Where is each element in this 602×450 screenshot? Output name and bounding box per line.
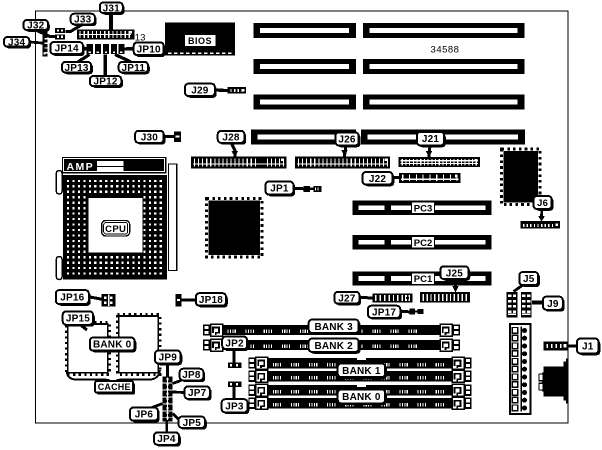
svg-text:CPU: CPU — [105, 224, 126, 235]
svg-text:J5: J5 — [523, 274, 535, 285]
svg-text:JP13: JP13 — [65, 63, 89, 74]
svg-text:J21: J21 — [422, 134, 440, 145]
svg-text:JP9: JP9 — [159, 353, 178, 364]
svg-text:JP5: JP5 — [183, 418, 202, 429]
svg-text:J28: J28 — [222, 133, 240, 144]
svg-text:BANK 0: BANK 0 — [342, 392, 381, 403]
svg-text:J25: J25 — [446, 268, 464, 279]
svg-text:JP17: JP17 — [372, 307, 396, 318]
svg-text:AMP: AMP — [67, 161, 95, 173]
svg-text:J22: J22 — [369, 174, 387, 185]
svg-text:JP1: JP1 — [270, 184, 289, 195]
svg-text:JP12: JP12 — [94, 77, 118, 88]
svg-text:JP3: JP3 — [225, 401, 244, 412]
svg-text:PC2: PC2 — [414, 238, 432, 249]
svg-text:CACHE: CACHE — [98, 382, 131, 392]
svg-text:JP15: JP15 — [66, 314, 90, 325]
svg-text:J33: J33 — [74, 15, 92, 26]
svg-text:PC1: PC1 — [414, 274, 433, 285]
svg-text:J31: J31 — [103, 3, 121, 14]
svg-text:JP16: JP16 — [60, 293, 84, 304]
svg-text:BIOS: BIOS — [188, 36, 212, 46]
svg-text:BANK 3: BANK 3 — [314, 322, 353, 333]
svg-text:J34: J34 — [8, 38, 26, 49]
svg-text:JP18: JP18 — [199, 295, 223, 306]
svg-text:J32: J32 — [27, 21, 45, 32]
svg-text:JP4: JP4 — [157, 434, 176, 445]
svg-text:J26: J26 — [338, 135, 356, 146]
svg-text:34588: 34588 — [431, 45, 460, 56]
svg-text:J27: J27 — [338, 293, 356, 304]
svg-text:JP2: JP2 — [225, 339, 244, 350]
svg-text:JP11: JP11 — [121, 63, 145, 74]
svg-text:BANK 1: BANK 1 — [342, 366, 381, 377]
svg-text:PC3: PC3 — [414, 204, 432, 215]
svg-text:J6: J6 — [537, 198, 548, 209]
svg-text:J29: J29 — [191, 85, 209, 96]
svg-text:BANK 2: BANK 2 — [314, 341, 353, 352]
svg-text:JP6: JP6 — [135, 410, 154, 421]
svg-text:JP8: JP8 — [182, 370, 201, 381]
svg-text:BANK 0: BANK 0 — [93, 340, 132, 351]
svg-text:JP7: JP7 — [188, 388, 207, 399]
svg-text:JP10: JP10 — [137, 44, 161, 55]
svg-text:J1: J1 — [582, 342, 594, 353]
svg-text:J9: J9 — [547, 299, 559, 310]
svg-text:JP14: JP14 — [55, 44, 79, 55]
svg-text:J30: J30 — [141, 133, 159, 144]
